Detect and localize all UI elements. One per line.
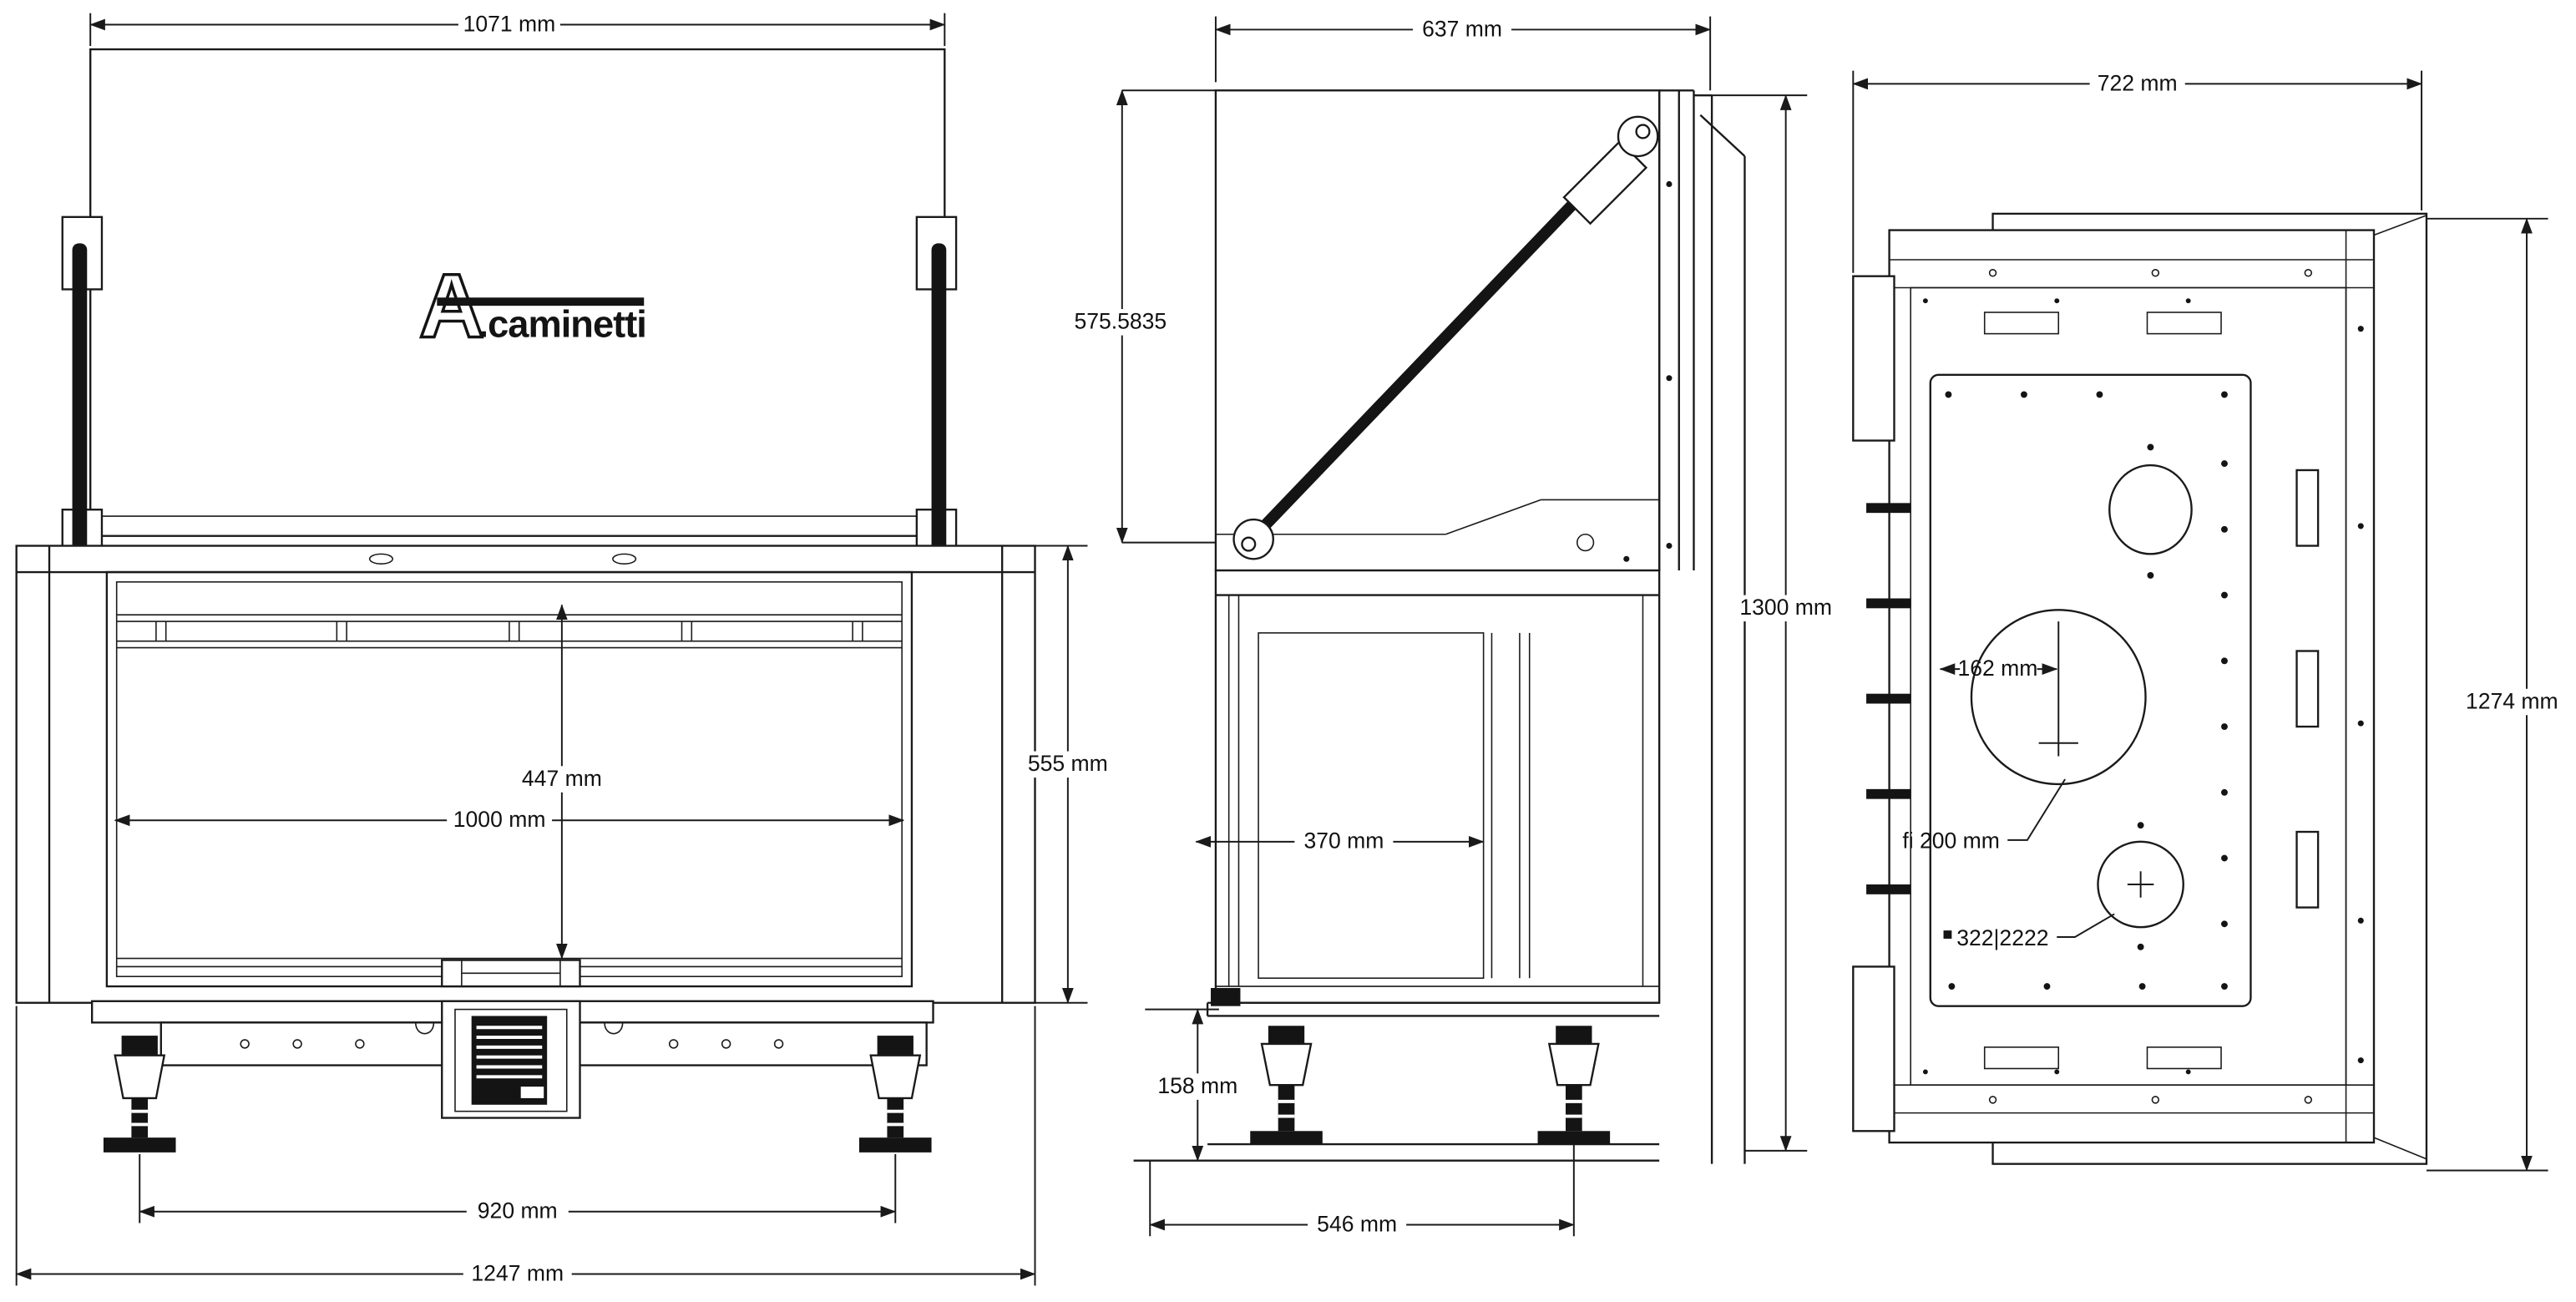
dim-label-1274: 1274 mm [2466, 688, 2558, 713]
front-base [92, 1001, 933, 1153]
dim-label-447: 447 mm [522, 766, 602, 791]
dim-label-1071: 1071 mm [463, 11, 556, 36]
fireplace-technical-drawing: A .caminetti [0, 0, 2576, 1302]
side-body [1216, 570, 1659, 1003]
dim-side-overall-height: 1300 mm [1712, 95, 1837, 1151]
dim-label-162: 162 mm [1958, 656, 2038, 681]
dim-label-555: 555 mm [1028, 751, 1108, 776]
front-view: A .caminetti [17, 11, 1116, 1287]
dim-label-637: 637 mm [1422, 16, 1502, 41]
technical-drawing-canvas: A .caminetti [0, 0, 2576, 1302]
side-view: 637 mm 575.5835 1300 mm 370 mm 158 mm [1068, 16, 1837, 1238]
dim-side-base-depth: 546 mm [1150, 1144, 1574, 1238]
dim-side-top-depth: 637 mm [1216, 16, 1710, 90]
brand-name: .caminetti [478, 303, 646, 346]
dim-label-722: 722 mm [2098, 70, 2178, 95]
dim-front-top-width: 1071 mm [90, 11, 944, 46]
label-fi-200: fi 200 mm [1902, 828, 2000, 854]
dim-label-1000: 1000 mm [453, 807, 546, 832]
side-front-foot [1250, 1026, 1323, 1144]
dim-label-546: 546 mm [1317, 1211, 1397, 1236]
dim-label-158: 158 mm [1157, 1073, 1237, 1098]
front-control-box [442, 1001, 579, 1118]
dim-label-1247: 1247 mm [471, 1260, 564, 1285]
front-door-handle [442, 960, 579, 986]
dim-label-1300: 1300 mm [1739, 595, 1832, 620]
side-lid [1216, 90, 1659, 570]
front-door-panel [90, 49, 944, 536]
dim-side-base-height: 158 mm [1145, 1010, 1245, 1161]
dim-label-920: 920 mm [478, 1198, 558, 1223]
rear-flue-opening [1971, 610, 2146, 784]
dim-label-575: 575.5835 [1074, 309, 1167, 334]
side-door-panel [1659, 90, 1744, 1163]
dim-front-feet-span: 920 mm [139, 1154, 895, 1225]
dim-label-370: 370 mm [1303, 828, 1384, 854]
rear-view: 722 mm 1274 mm 162 mm fi 200 mm 322|2222 [1853, 70, 2564, 1170]
rear-side-slots [2297, 470, 2319, 908]
dim-side-door-lift: 575.5835 [1068, 90, 1216, 542]
side-rear-foot [1538, 1026, 1611, 1144]
label-socket-code: 322|2222 [1956, 925, 2048, 950]
dim-rear-overall-height: 1274 mm [2427, 219, 2564, 1171]
